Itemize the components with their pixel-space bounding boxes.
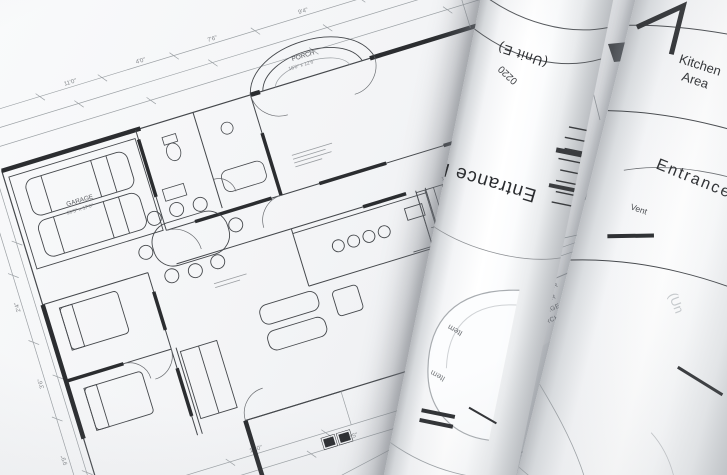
blueprint-photo-scene: 22'6" 11'0" 4'0" 7'6" 9'4" 11'0" 5'4" 2'… xyxy=(0,0,727,475)
paper-flap xyxy=(414,275,519,440)
